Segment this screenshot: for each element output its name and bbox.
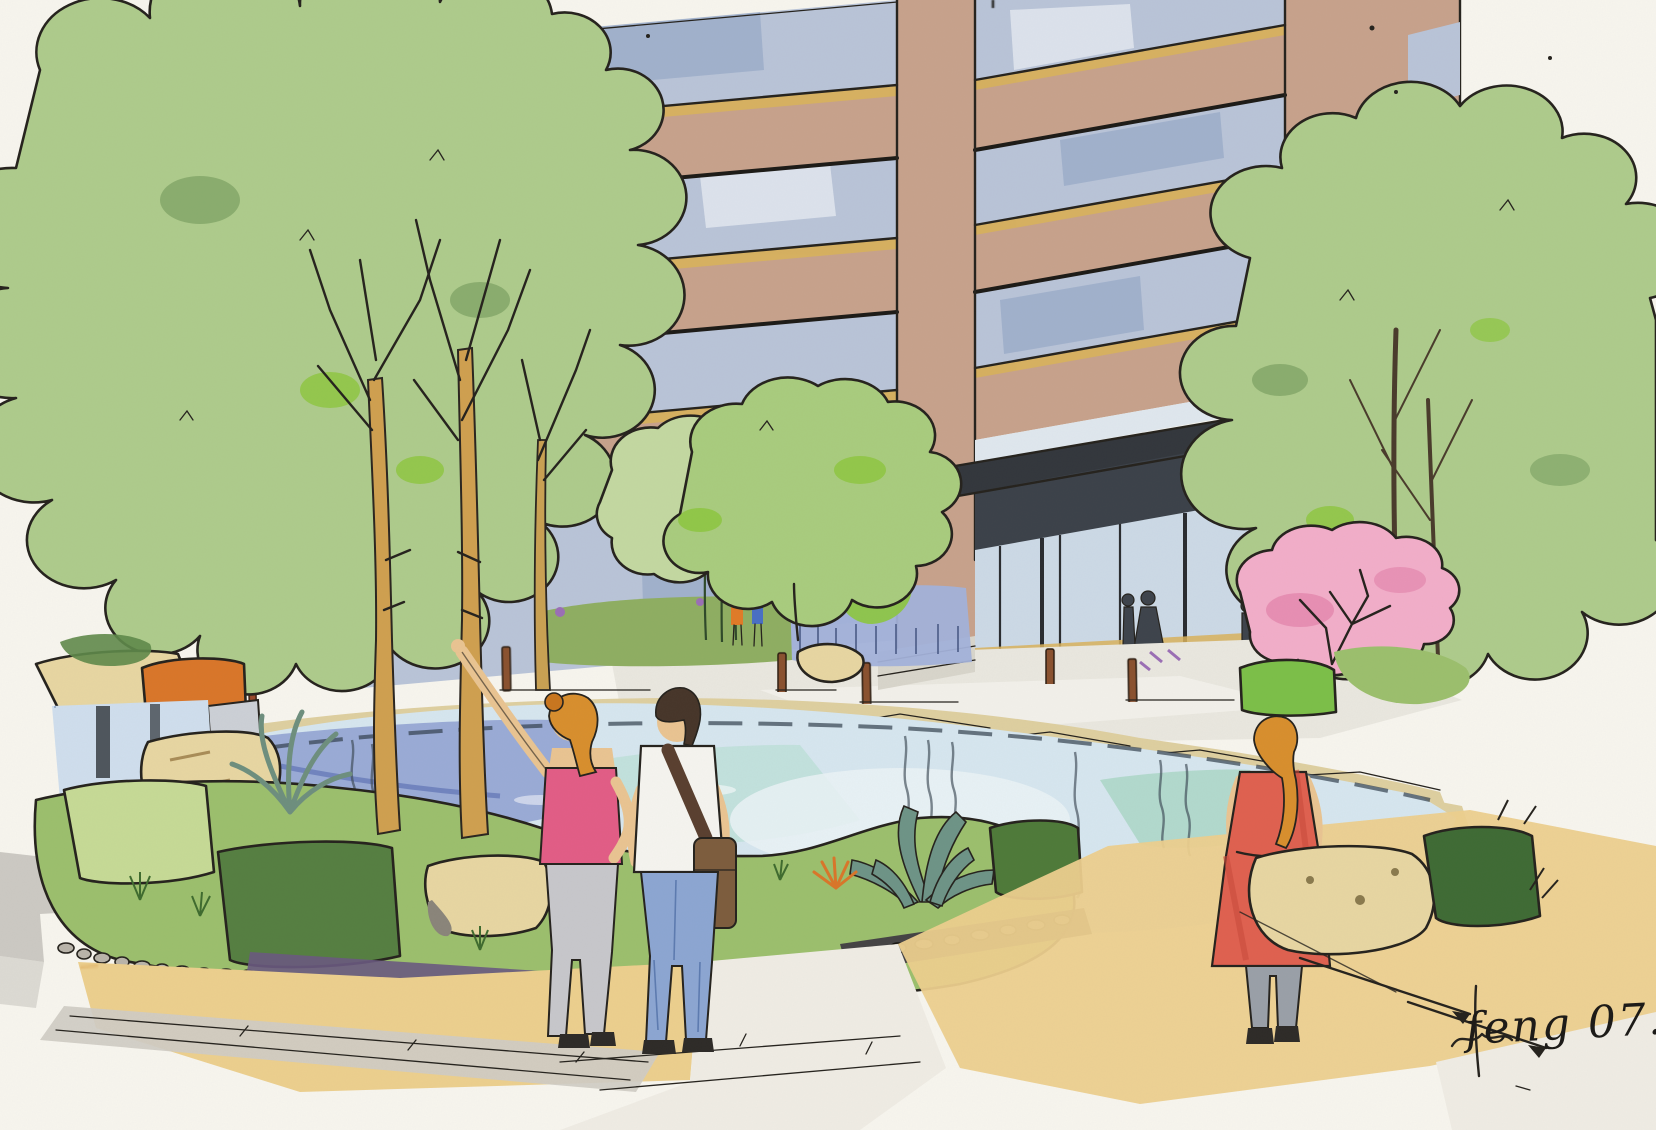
sketch-sheet: feng 07. 4. bbox=[0, 0, 1656, 1130]
paper-grain-overlay bbox=[0, 0, 1656, 1130]
rendering-canvas: feng 07. 4. bbox=[0, 0, 1656, 1130]
